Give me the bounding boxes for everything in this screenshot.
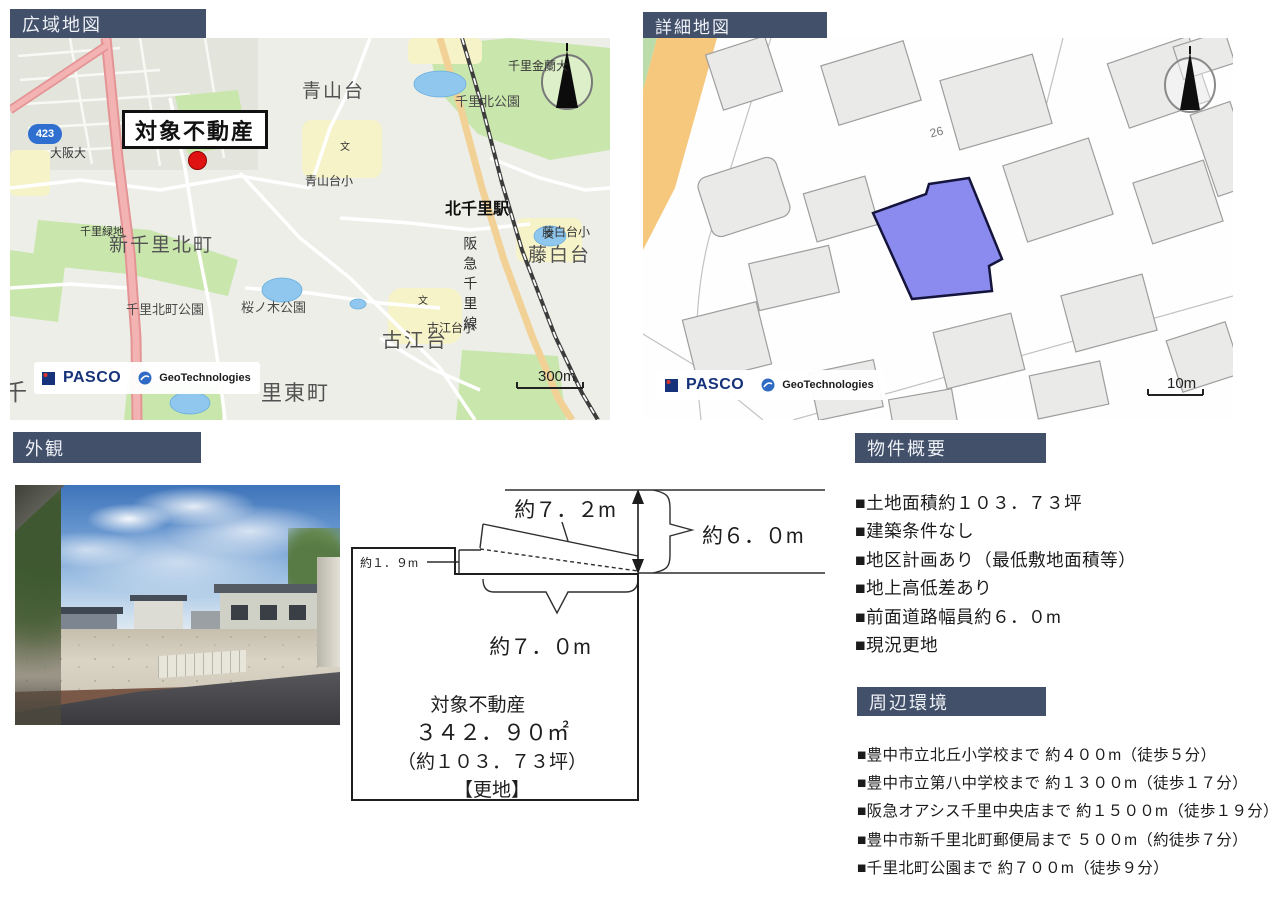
list-item: ■豊中市立北丘小学校まで 約４００m（徒歩５分） [857,742,1279,770]
list-item: ■阪急オアシス千里中央店まで 約１５００m（徒歩１９分） [857,798,1279,826]
overview-header-label: 物件概要 [867,435,947,461]
map-label-aoyamadai-elementary: 青山台小 [305,175,353,188]
list-item: ■豊中市立第八中学校まで 約１３００m（徒歩１７分） [857,770,1279,798]
detail-map-header-label: 詳細地図 [655,13,731,38]
exterior-header-label: 外観 [25,435,65,461]
map-label-hankyu-senri-line: 阪急千里線 [462,236,477,361]
detail-map-header: 詳細地図 [643,12,827,39]
road-width-brace [653,490,692,573]
pasco-logo-icon [42,371,56,385]
map-label-sen: 千 [10,380,29,405]
target-property-label-text: 対象不動産 [135,114,255,146]
dim-bottom-label: 約７．０m [489,636,591,659]
wide-map-header-label: 広域地図 [22,11,102,37]
school-symbol: 文 [340,142,350,153]
plot-condition: 【更地】 [454,779,530,801]
map-label-sakuranoki-park: 桜ノ木公園 [241,301,306,315]
target-property-marker [188,151,207,170]
wide-area-map: 青山台 千里金蘭大 千里北公園 青山台小 北千里駅 藤白台小 藤白台 阪急千里線… [10,38,610,420]
map-label-osaka-university: 大阪大 [50,147,86,160]
plot-area-m2: ３４２．９０㎡ [415,720,569,745]
route-shield-423: 423 [28,124,62,144]
property-flyer-page: 広域地図 詳細地図 外観 物件概要 周辺環境 [0,0,1280,900]
school-symbol: 文 [544,230,554,241]
detail-map: 26 10m PASCO GeoTechnologies [643,38,1233,420]
list-item: ■千里北町公園まで 約７００m（徒歩９分） [857,855,1279,883]
list-item: ■建築条件なし [855,517,1136,545]
exterior-header: 外観 [13,432,201,463]
overview-header: 物件概要 [855,433,1046,463]
environment-list: ■豊中市立北丘小学校まで 約４００m（徒歩５分） ■豊中市立第八中学校まで 約１… [857,742,1279,883]
map-label-senri-kinran: 千里金蘭大 [508,60,568,73]
list-item: ■前面道路幅員約６．０m [855,603,1136,631]
map-label-shinsenri-kitamachi: 新千里北町 [109,236,214,257]
plot-title: 対象不動産 [430,694,525,716]
list-item: ■現況更地 [855,631,1136,659]
photo-right-wall [317,557,340,667]
dim-top-label: 約７．２m [514,499,616,522]
dim-road-width-label: 約６．０m [702,525,804,548]
map-label-senri-kitamachi-park: 千里北町公園 [126,303,204,317]
detail-map-art [643,38,1233,420]
map-label-senri-ryokuchi: 千里緑地 [80,226,124,238]
target-property-label: 対象不動産 [122,110,268,149]
geotechnologies-logo-icon [761,378,775,392]
pasco-logo-icon [665,378,679,392]
exterior-photo [15,485,340,725]
map-label-aoyamadai: 青山台 [302,82,365,103]
route-shield-number: 423 [36,128,54,140]
wide-map-header: 広域地図 [10,9,206,39]
geotechnologies-logo: GeoTechnologies [159,372,250,384]
pasco-logo: PASCO [63,369,121,387]
map-label-koedai: 古江台 [382,330,448,352]
map-attribution: PASCO GeoTechnologies [34,362,260,394]
list-item: ■地区計画あり（最低敷地面積等） [855,546,1136,574]
bottom-dim-brace [483,579,638,613]
school-symbol: 文 [418,296,428,307]
map-label-sato-higashimachi: 里東町 [261,382,330,405]
pasco-logo: PASCO [686,376,744,394]
dim-step-label: 約１．９m [360,555,418,570]
overview-list: ■土地面積約１０３．７３坪 ■建築条件なし ■地区計画あり（最低敷地面積等） ■… [855,489,1136,659]
environment-header: 周辺環境 [857,687,1046,716]
map-label-fujishirodai: 藤白台 [528,246,591,267]
map-label-senri-kita-park: 千里北公園 [455,95,520,109]
map-label-kitasenri-station: 北千里駅 [445,201,509,219]
list-item: ■豊中市新千里北町郵便局まで ５００m（約徒歩７分） [857,827,1279,855]
scale-label: 10m [1167,376,1196,393]
plot-area-tsubo: （約１０３．７３坪） [397,751,587,773]
list-item: ■土地面積約１０３．７３坪 [855,489,1136,517]
environment-header-label: 周辺環境 [869,689,949,715]
scale-label: 300m [538,369,576,386]
map-attribution: PASCO GeoTechnologies [657,370,885,400]
geotechnologies-logo-icon [138,371,152,385]
plot-diagram: 約７．２m 約６．０m 約１．９m 約７．０m 対象不動産 ３４２．９０㎡ （約… [340,480,840,820]
list-item: ■地上高低差あり [855,574,1136,602]
geotechnologies-logo: GeoTechnologies [782,379,873,391]
